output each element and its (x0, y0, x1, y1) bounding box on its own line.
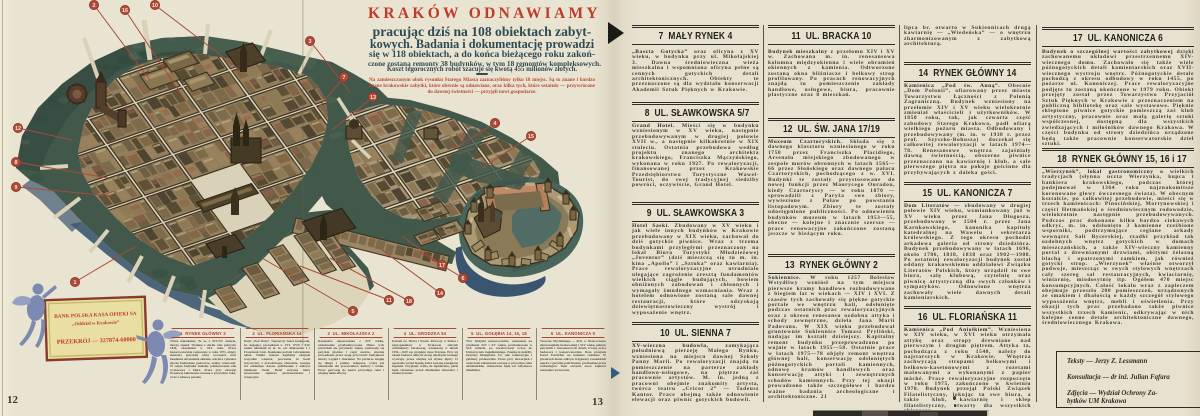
svg-text:10: 10 (152, 3, 158, 9)
svg-text:15: 15 (528, 134, 534, 140)
svg-text:16: 16 (122, 8, 128, 14)
svg-text:3: 3 (309, 39, 312, 45)
svg-text:5: 5 (352, 309, 355, 315)
svg-text:12: 12 (15, 126, 21, 132)
svg-text:11: 11 (386, 298, 392, 304)
svg-text:18: 18 (406, 299, 412, 305)
svg-text:13: 13 (370, 95, 376, 101)
svg-text:8: 8 (15, 160, 18, 166)
svg-text:6: 6 (462, 276, 465, 282)
svg-text:4: 4 (494, 121, 497, 127)
svg-text:2: 2 (93, 3, 96, 9)
svg-text:17: 17 (439, 263, 445, 269)
svg-text:7: 7 (343, 75, 346, 81)
svg-text:14: 14 (437, 291, 443, 297)
svg-text:9: 9 (15, 185, 18, 191)
